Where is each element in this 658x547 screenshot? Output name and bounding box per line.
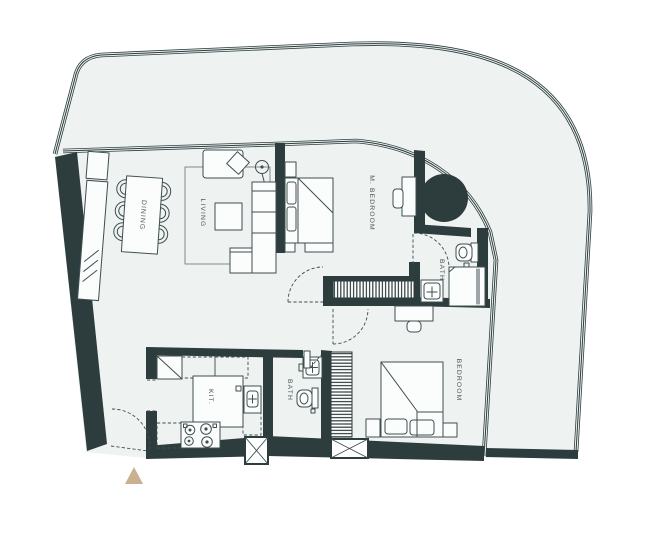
nightstand: [285, 243, 295, 252]
floor-plan-drawing: DINING LIVING M. BEDROOM BATH KIT. BATH …: [0, 0, 658, 547]
wall-wardrobe-cap: [323, 276, 333, 306]
master-bedroom-label: M. BEDROOM: [368, 175, 375, 231]
sink-icon: [421, 280, 443, 302]
bench: [305, 243, 333, 252]
shower: [449, 267, 485, 306]
dresser: [395, 306, 433, 321]
desk-chair: [393, 189, 403, 208]
kitchen-counter: [193, 376, 243, 427]
master-wardrobe: [333, 281, 414, 298]
kitchen-sink-icon: [244, 386, 261, 413]
wall-wardrobe-top: [333, 276, 414, 281]
wall-kitchen-bath-divider: [263, 351, 273, 440]
dresser-stool: [407, 321, 421, 332]
nightstand: [285, 162, 296, 177]
wall-bath-right: [321, 350, 332, 440]
bath-label: BATH: [286, 379, 293, 401]
shaft-icon: [331, 439, 368, 458]
bedroom-wardrobe: [331, 352, 352, 437]
master-bed: [285, 178, 333, 243]
structural-column: [420, 174, 468, 222]
shaft-icon: [245, 437, 268, 464]
entrance-marker-icon: [125, 467, 143, 484]
desk: [402, 177, 416, 216]
kitchen-label: KIT.: [207, 389, 214, 405]
coffee-table: [215, 203, 242, 230]
bedroom-label: BEDROOM: [455, 359, 462, 402]
master-bath-label: BATH: [438, 259, 445, 281]
nightstand: [443, 423, 457, 437]
living-label: LIVING: [199, 199, 206, 228]
stove-icon: [181, 422, 220, 448]
wall-kitchen-left-upper: [146, 347, 157, 379]
floor-plan: DINING LIVING M. BEDROOM BATH KIT. BATH …: [0, 0, 658, 547]
nightstand: [366, 419, 380, 437]
